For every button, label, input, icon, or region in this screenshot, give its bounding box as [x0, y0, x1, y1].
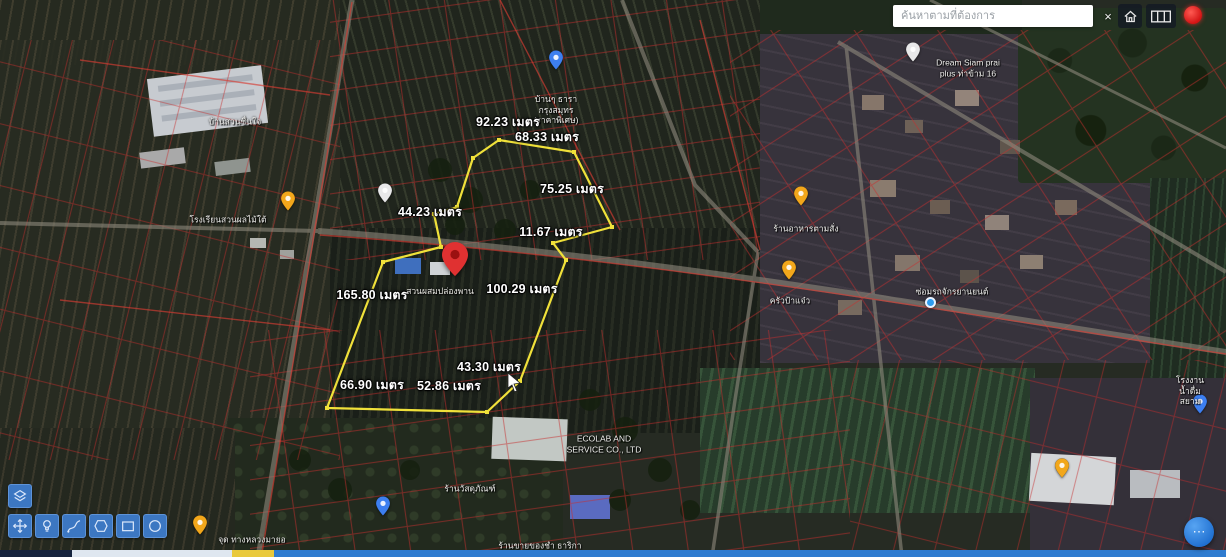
- measurement-label: 165.80 เมตร: [336, 285, 407, 305]
- measurement-label: 44.23 เมตร: [398, 202, 462, 222]
- layers-grid-button[interactable]: [1146, 4, 1176, 28]
- record-dot-icon[interactable]: [1184, 6, 1202, 24]
- polygon-icon: [93, 518, 109, 534]
- move-tool-button[interactable]: [8, 514, 32, 538]
- search-bar: [893, 5, 1093, 27]
- marker-tool-button[interactable]: [35, 514, 59, 538]
- scrollbar-thumb[interactable]: [72, 550, 232, 557]
- measurement-label: 100.29 เมตร: [486, 279, 557, 299]
- cursor-icon: [506, 372, 522, 392]
- search-input[interactable]: [893, 5, 1093, 27]
- draw-rectangle-tool-button[interactable]: [116, 514, 140, 538]
- scrollbar-segment: [0, 550, 72, 557]
- close-icon[interactable]: ×: [1099, 5, 1117, 27]
- draw-circle-tool-button[interactable]: [143, 514, 167, 538]
- measurement-layer: 92.23 เมตร68.33 เมตร75.25 เมตร44.23 เมตร…: [0, 0, 1226, 557]
- selected-location-pin[interactable]: [442, 242, 468, 281]
- measurement-label: 11.67 เมตร: [519, 222, 582, 242]
- bulb-icon: [39, 518, 55, 534]
- chat-fab-button[interactable]: ⋯: [1184, 517, 1214, 547]
- home-icon: [1123, 9, 1138, 24]
- layers-tool-button[interactable]: [8, 484, 32, 508]
- measurement-label: 75.25 เมตร: [540, 179, 604, 199]
- scrollbar-segment: [232, 550, 274, 557]
- circle-icon: [147, 518, 163, 534]
- measurement-label: 52.86 เมตร: [417, 376, 481, 396]
- measurement-label: 66.90 เมตร: [340, 375, 404, 395]
- move-icon: [12, 518, 28, 534]
- rectangle-icon: [120, 518, 136, 534]
- layers-icon: [12, 488, 28, 504]
- map-app: บ้านสวนชื่นใจโรงเรียนสวนผลไม้ใต้บ้านๆ ธา…: [0, 0, 1226, 557]
- selected-location-label: สวนผสมปล่องพาน: [406, 284, 474, 298]
- draw-polygon-tool-button[interactable]: [89, 514, 113, 538]
- pen-icon: [66, 518, 82, 534]
- bottom-scrollbar[interactable]: [0, 550, 1226, 557]
- measurement-label: 68.33 เมตร: [515, 127, 579, 147]
- grid-icon: [1151, 10, 1171, 23]
- draw-line-tool-button[interactable]: [62, 514, 86, 538]
- home-button[interactable]: [1118, 4, 1142, 28]
